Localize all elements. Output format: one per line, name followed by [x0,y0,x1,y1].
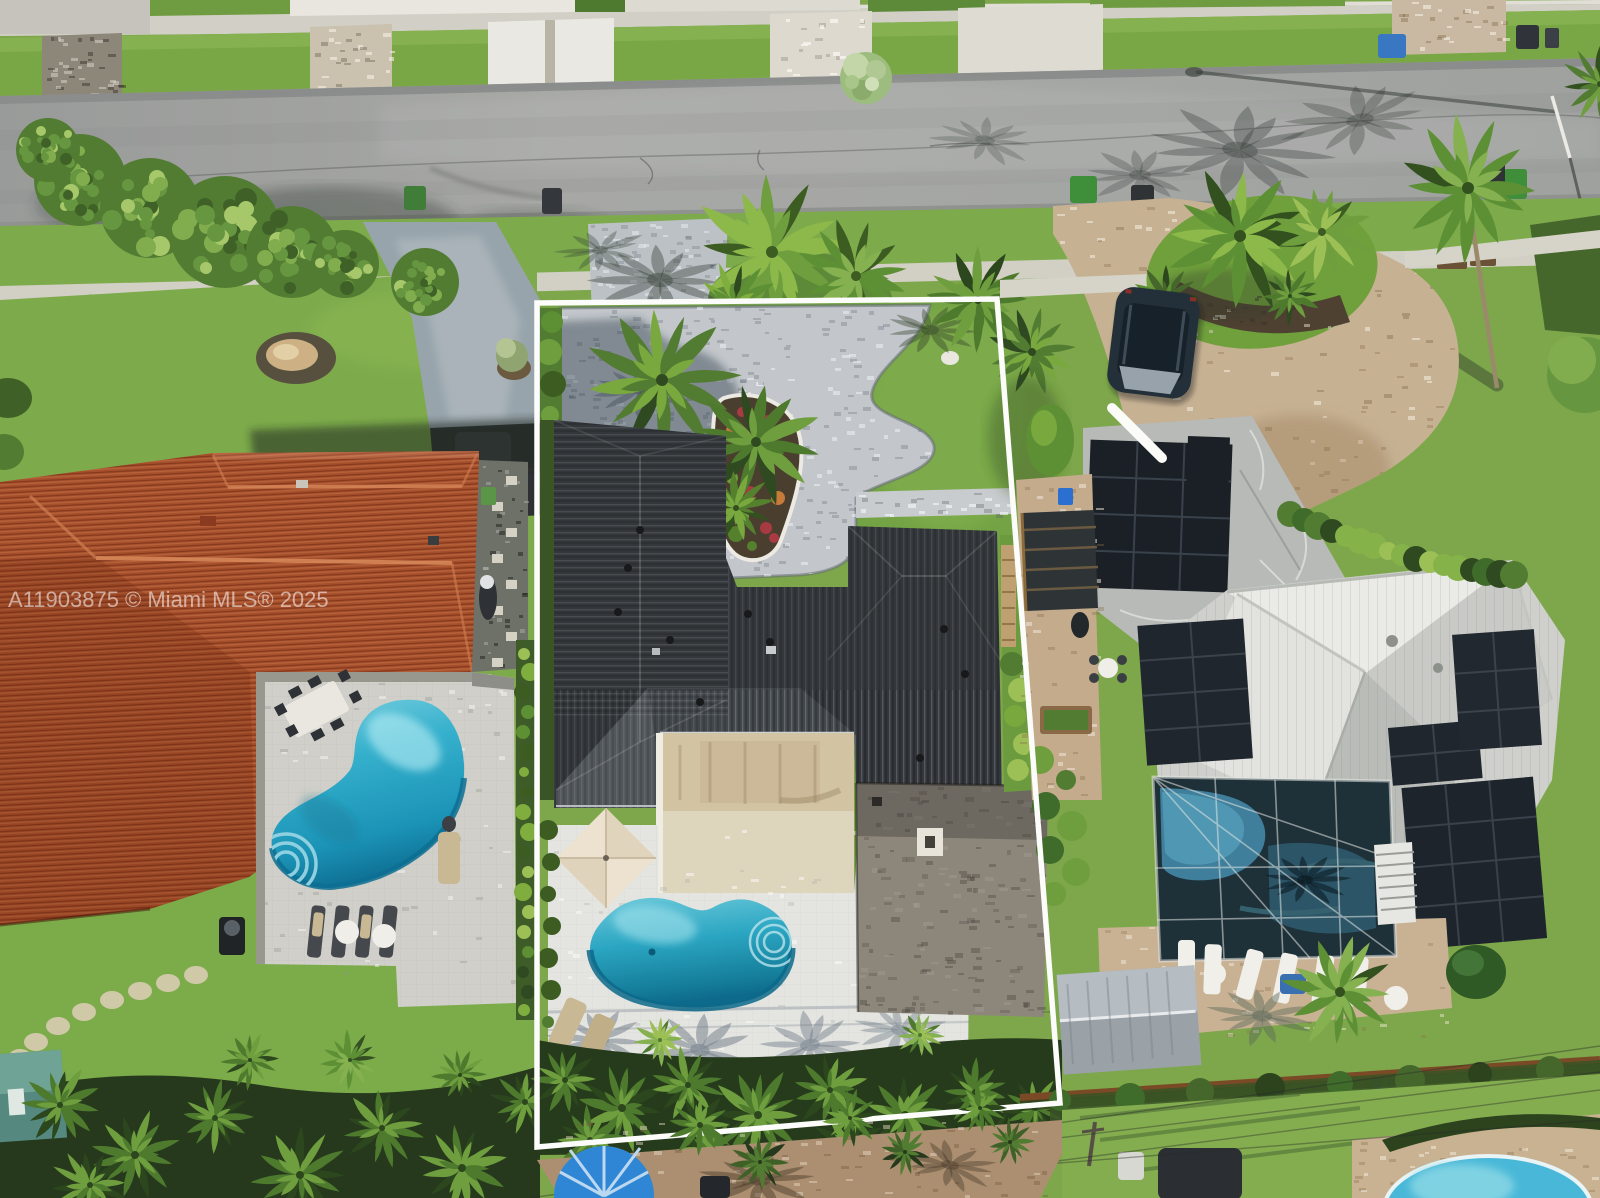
svg-text:A11903875 © Miami MLS® 2025: A11903875 © Miami MLS® 2025 [8,587,329,612]
